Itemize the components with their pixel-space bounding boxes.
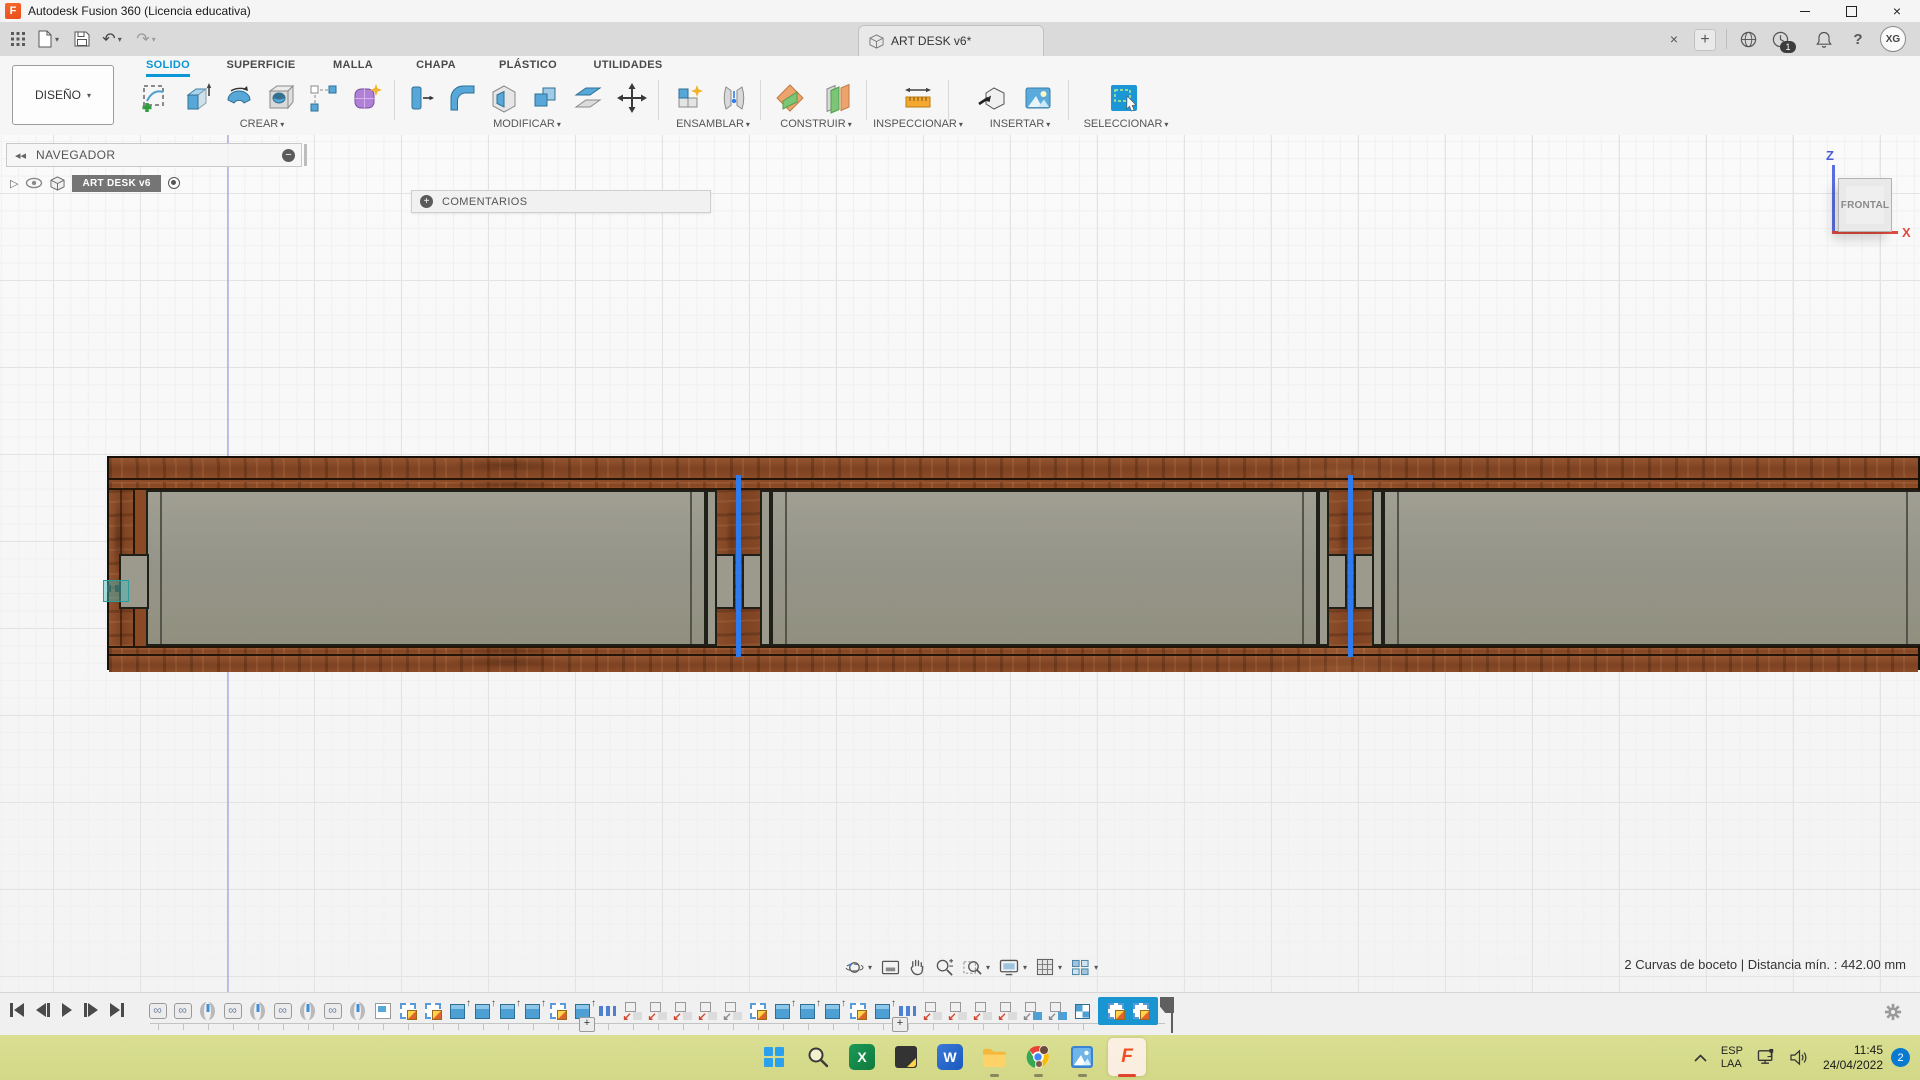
timeline-playhead-line [1171, 997, 1173, 1033]
notification-count-badge[interactable]: 2 [1891, 1048, 1910, 1067]
shell-icon [488, 82, 520, 114]
timeline-feature-joint-icon[interactable] [200, 1002, 215, 1020]
timeline-feature-slot [295, 999, 320, 1023]
navigator-item-label[interactable]: ART DESK v6 [72, 175, 160, 192]
tab-superficie[interactable]: SUPERFICIE [226, 59, 295, 74]
timeline-feature-joint-icon[interactable] [350, 1002, 365, 1020]
tab-chapa[interactable]: CHAPA [416, 59, 456, 74]
undo-icon: ↶ [102, 29, 115, 49]
selected-sketch-curve[interactable] [1348, 475, 1353, 657]
timeline-feature-slot [645, 999, 670, 1023]
divider [1068, 80, 1069, 120]
chevron-down-icon: ▾ [986, 963, 990, 972]
desk-top-inner-board[interactable] [109, 482, 1918, 490]
active-document-tab[interactable]: ART DESK v6* [858, 25, 1044, 56]
go-to-start-button[interactable] [10, 1003, 24, 1017]
keyboard-layout-code: LAA [1721, 1058, 1743, 1071]
chevron-down-icon: ▾ [280, 120, 284, 129]
timeline-features [145, 999, 1095, 1023]
drawer-slide-tab[interactable] [1354, 554, 1374, 609]
tab-utilidades[interactable]: UTILIDADES [594, 59, 663, 74]
expand-group-button[interactable]: + [892, 1017, 908, 1032]
workspace-selector-button[interactable]: DISEÑO▾ [12, 65, 114, 125]
bell-icon [1816, 31, 1832, 48]
combine-button[interactable] [528, 80, 564, 116]
joint-button[interactable] [716, 80, 752, 116]
open-app-indicator [1078, 1074, 1087, 1077]
insert-canvas-button[interactable] [1020, 80, 1056, 116]
drawer-slide-tab[interactable] [1327, 554, 1347, 609]
chevron-down-icon: ▾ [1023, 963, 1027, 972]
tab-malla[interactable]: MALLA [333, 59, 373, 74]
timeline-feature-slot [795, 999, 820, 1023]
zoom-window-icon [963, 958, 982, 977]
title-bar: F Autodesk Fusion 360 (Licencia educativ… [0, 0, 1920, 23]
timeline-feature-slot [545, 999, 570, 1023]
timeline-feature-slot [595, 999, 620, 1023]
measure-button[interactable] [900, 80, 936, 116]
pan-hand-icon [909, 958, 926, 976]
timeline-feature-pattern-icon[interactable] [899, 1006, 916, 1016]
timeline-feature-slot [270, 999, 295, 1023]
look-at-button[interactable] [881, 960, 900, 975]
timeline-feature-slot [745, 999, 770, 1023]
timeline-feature-slot [220, 999, 245, 1023]
group-label-crear[interactable]: CREAR▾ [240, 118, 285, 130]
timeline-feature-sketch-icon[interactable] [400, 1003, 416, 1019]
expand-group-button[interactable]: + [579, 1017, 595, 1032]
notifications-button[interactable] [1812, 27, 1836, 51]
shell-button[interactable] [486, 80, 522, 116]
workspace-label: DISEÑO [35, 88, 81, 102]
taskbar-sticky-notes-button[interactable] [892, 1043, 920, 1071]
timeline-feature-slot [920, 999, 945, 1023]
redo-button[interactable]: ↷▾ [134, 27, 158, 51]
help-button[interactable]: ? [1846, 27, 1870, 51]
canvas-navigation-bar: ▾ ▾ ▾ ▾ ▾ [845, 953, 1098, 981]
file-icon [37, 30, 53, 48]
modeling-canvas[interactable]: ◂◂ NAVEGADOR − ▷ ART DESK v6 + COMENTARI… [0, 135, 1920, 992]
grid-menu-icon [11, 32, 25, 46]
navigator-scrollbar[interactable] [304, 144, 307, 166]
document-cube-icon [869, 34, 884, 49]
timeline-feature-sketch-icon[interactable] [1133, 1003, 1149, 1019]
user-avatar[interactable]: XG [1880, 26, 1906, 52]
timeline-feature-slot [370, 999, 395, 1023]
maximize-icon [1846, 6, 1857, 17]
construction-plane-icon [774, 82, 806, 114]
hole-icon [265, 82, 297, 114]
maximize-button[interactable] [1828, 0, 1874, 22]
timeline-feature-slot [395, 999, 420, 1023]
timeline-feature-slot [620, 999, 645, 1023]
network-button[interactable] [1757, 1048, 1778, 1067]
timeline-feature-slot [695, 999, 720, 1023]
chrome-icon [1026, 1045, 1050, 1069]
group-label-seleccionar[interactable]: SELECCIONAR▾ [1084, 118, 1169, 130]
plus-icon: + [1700, 31, 1709, 49]
timeline-feature-slot [1070, 999, 1095, 1023]
excel-icon: X [849, 1044, 875, 1070]
timeline-feature-slot [970, 999, 995, 1023]
tab-plastico[interactable]: PLÁSTICO [499, 59, 557, 74]
timeline-feature-slot [495, 999, 520, 1023]
active-app-indicator [1118, 1074, 1136, 1077]
document-tab-label: ART DESK v6* [891, 34, 971, 48]
remove-filter-icon[interactable]: − [282, 149, 295, 162]
chevron-down-icon: ▾ [868, 963, 872, 972]
timeline-feature-sketch-icon[interactable] [750, 1003, 766, 1019]
timeline-feature-extrude-icon[interactable] [800, 1004, 815, 1019]
sticky-notes-icon [894, 1045, 918, 1069]
canvas-image-icon [1022, 82, 1054, 114]
navigator-title: NAVEGADOR [36, 148, 115, 162]
taskbar-search-button[interactable] [804, 1043, 832, 1071]
undo-button[interactable]: ↶▾ [100, 27, 124, 51]
axis-z-line [1832, 165, 1835, 233]
timeline-feature-slot [345, 999, 370, 1023]
divider [760, 80, 761, 120]
redo-icon: ↷ [136, 29, 149, 49]
pattern-button[interactable] [305, 80, 341, 116]
timeline-feature-slot [445, 999, 470, 1023]
zoom-window-button[interactable]: ▾ [963, 958, 990, 977]
minimize-button[interactable] [1782, 0, 1828, 22]
bay-divider[interactable] [706, 490, 771, 646]
group-label-insertar[interactable]: INSERTAR▾ [990, 118, 1051, 130]
look-at-icon [881, 960, 900, 975]
new-document-tab-button[interactable]: + [1694, 29, 1716, 51]
volume-button[interactable] [1790, 1049, 1809, 1066]
timeline-feature-extrude-icon[interactable] [875, 1004, 890, 1019]
document-tab-bar: ▾ ↶▾ ↷▾ ART DESK v6* × + 1 ? XG [0, 22, 1920, 57]
desk-bottom-board[interactable] [109, 654, 1918, 672]
move-copy-button[interactable] [614, 80, 650, 116]
close-document-button[interactable]: × [1662, 27, 1686, 51]
timeline-feature-slot [520, 999, 545, 1023]
manipulator-handle[interactable] [103, 580, 129, 602]
timeline-feature-rigid-icon[interactable] [149, 1003, 167, 1019]
revolve-icon [223, 82, 255, 114]
app-grid-button[interactable] [6, 27, 30, 51]
chevron-down-icon: ▾ [746, 120, 750, 129]
create-sketch-icon [139, 82, 171, 114]
press-pull-icon [404, 82, 436, 114]
timeline-feature-move-icon[interactable] [974, 1002, 992, 1020]
timeline-selected-features [1098, 997, 1158, 1025]
close-icon: × [1893, 4, 1901, 18]
axis-z-label: Z [1826, 148, 1834, 163]
save-button[interactable] [70, 27, 94, 51]
tray-time: 11:45 [1823, 1043, 1883, 1058]
chevron-down-icon: ▾ [1164, 120, 1168, 129]
chevron-down-icon: ▾ [152, 35, 156, 44]
form-icon [350, 82, 382, 114]
timeline-feature-move-icon[interactable] [699, 1002, 717, 1020]
chevron-down-icon: ▾ [118, 35, 122, 44]
search-icon [807, 1046, 829, 1068]
timeline-feature-movegray-icon[interactable] [724, 1002, 742, 1020]
tab-solido[interactable]: SOLIDO [146, 59, 190, 77]
windows-start-icon [763, 1046, 785, 1068]
globe-icon [1740, 31, 1757, 48]
timeline-feature-sketch-icon[interactable] [1108, 1003, 1124, 1019]
insert-mesh-icon [977, 82, 1009, 114]
minimize-icon [1800, 11, 1810, 12]
collapse-panel-icon[interactable]: ◂◂ [15, 149, 26, 162]
job-status-badge: 1 [1780, 41, 1796, 53]
timeline-feature-rigid-icon[interactable] [174, 1003, 192, 1019]
timeline-feature-extrude-icon[interactable] [500, 1004, 515, 1019]
grid-settings-icon [1036, 958, 1054, 976]
group-label-construir[interactable]: CONSTRUIR▾ [780, 118, 851, 130]
timeline-feature-sketch-icon[interactable] [550, 1003, 566, 1019]
timeline-feature-slot [770, 999, 795, 1023]
group-label-ensamblar[interactable]: ENSAMBLAR▾ [676, 118, 750, 130]
timeline-feature-slot [245, 999, 270, 1023]
job-status-button[interactable]: 1 [1768, 27, 1792, 51]
zoom-button[interactable] [935, 958, 954, 977]
grid-settings-button[interactable]: ▾ [1036, 958, 1062, 976]
timeline-feature-extrude-icon[interactable] [525, 1004, 540, 1019]
timeline-feature-slot [720, 999, 745, 1023]
input-language-button[interactable]: ESP LAA [1721, 1045, 1743, 1071]
move-icon [616, 82, 648, 114]
extension-manager-button[interactable] [1736, 27, 1760, 51]
construction-plane-button[interactable] [772, 80, 808, 116]
chevron-down-icon: ▾ [959, 120, 963, 129]
ribbon: SOLIDO SUPERFICIE MALLA CHAPA PLÁSTICO U… [0, 56, 1920, 136]
play-button[interactable] [62, 1003, 72, 1017]
measure-icon [902, 82, 934, 114]
timeline-feature-move-icon[interactable] [949, 1002, 967, 1020]
viewports-icon [1071, 959, 1090, 976]
timeline-feature-slot [945, 999, 970, 1023]
offset-plane-icon [820, 82, 852, 114]
group-label-inspeccionar[interactable]: INSPECCIONAR▾ [873, 118, 963, 130]
chevron-down-icon: ▾ [848, 120, 852, 129]
display-settings-icon [999, 959, 1019, 976]
navigator-panel-header[interactable]: ◂◂ NAVEGADOR − [6, 143, 302, 167]
create-sketch-button[interactable] [137, 80, 173, 116]
divider [866, 80, 867, 120]
timeline-feature-move-icon[interactable] [624, 1002, 642, 1020]
new-component-icon [674, 82, 706, 114]
network-icon [1757, 1048, 1778, 1067]
drawer-slide-tab[interactable] [742, 554, 762, 609]
timeline-feature-rigid-icon[interactable] [324, 1003, 342, 1019]
timeline-feature-plane-icon[interactable] [375, 1003, 391, 1019]
insert-mesh-button[interactable] [975, 80, 1011, 116]
taskbar-file-explorer-button[interactable] [980, 1043, 1008, 1071]
timeline-feature-moveblue-icon[interactable] [1024, 1002, 1042, 1020]
taskbar-chrome-button[interactable] [1024, 1043, 1052, 1071]
system-tray: ESP LAA 11:45 24/04/2022 2 [1694, 1035, 1920, 1080]
step-back-button[interactable] [36, 1003, 50, 1017]
joint-icon [718, 82, 750, 114]
component-icon [50, 176, 65, 191]
timeline-feature-extrude-icon[interactable] [475, 1004, 490, 1019]
timeline-feature-slot [1020, 999, 1045, 1023]
timeline-feature-move-icon[interactable] [999, 1002, 1017, 1020]
close-button[interactable]: × [1874, 0, 1920, 22]
step-forward-button[interactable] [84, 1003, 98, 1017]
timeline-feature-extrude-icon[interactable] [450, 1004, 465, 1019]
timeline-feature-slot [420, 999, 445, 1023]
timeline-feature-extrude-icon[interactable] [825, 1004, 840, 1019]
timeline-feature-rigid-icon[interactable] [224, 1003, 242, 1019]
extrude-button[interactable] [179, 80, 215, 116]
timeline-feature-joint-icon[interactable] [300, 1002, 315, 1020]
timeline-feature-slot [670, 999, 695, 1023]
taskbar-word-button[interactable]: W [936, 1043, 964, 1071]
avatar-initials: XG [1886, 34, 1900, 45]
timeline-feature-sketch-icon[interactable] [850, 1003, 866, 1019]
navigator-root-item[interactable]: ▷ ART DESK v6 [10, 174, 180, 192]
divider [394, 80, 395, 120]
select-button[interactable] [1106, 80, 1142, 116]
timeline-feature-slot [1128, 999, 1153, 1023]
open-app-indicator [1034, 1074, 1043, 1077]
gear-icon [1884, 1003, 1902, 1021]
visibility-eye-icon[interactable] [25, 177, 43, 189]
viewports-button[interactable]: ▾ [1071, 959, 1098, 976]
open-app-indicator [990, 1074, 999, 1077]
timeline-feature-move-icon[interactable] [924, 1002, 942, 1020]
taskbar-photos-button[interactable] [1068, 1043, 1096, 1071]
orbit-icon [845, 958, 864, 977]
divider [658, 80, 659, 120]
viewcube-face-label: FRONTAL [1841, 200, 1889, 211]
chevron-down-icon: ▾ [87, 91, 91, 100]
hole-button[interactable] [263, 80, 299, 116]
clock-date-button[interactable]: 11:45 24/04/2022 [1823, 1043, 1883, 1073]
language-code: ESP [1721, 1045, 1743, 1058]
selected-sketch-curve[interactable] [736, 475, 741, 657]
desk-top-board[interactable] [109, 458, 1918, 480]
activate-component-radio[interactable] [168, 177, 180, 189]
desk-bottom-inner-board[interactable] [109, 646, 1918, 654]
pan-button[interactable] [909, 958, 926, 976]
taskbar-excel-button[interactable]: X [848, 1043, 876, 1071]
folder-icon [982, 1047, 1007, 1068]
chevron-down-icon: ▾ [1094, 963, 1098, 972]
timeline-feature-combine-icon[interactable] [1075, 1004, 1090, 1019]
word-icon: W [937, 1044, 963, 1070]
select-icon [1108, 82, 1140, 114]
expand-arrow-icon[interactable]: ▷ [10, 177, 18, 190]
create-form-button[interactable] [348, 80, 384, 116]
viewcube[interactable]: Z X FRONTAL [1810, 140, 1920, 250]
timeline-feature-move-icon[interactable] [649, 1002, 667, 1020]
fusion-360-icon: F [1121, 1046, 1133, 1068]
save-icon [74, 31, 90, 47]
offset-plane-button[interactable] [818, 80, 854, 116]
fillet-icon [446, 82, 478, 114]
speaker-icon [1790, 1049, 1809, 1066]
divider [1726, 29, 1727, 49]
orbit-button[interactable]: ▾ [845, 958, 872, 977]
timeline-feature-rigid-icon[interactable] [274, 1003, 292, 1019]
timeline-feature-slot [1103, 999, 1128, 1023]
timeline-feature-slot [195, 999, 220, 1023]
timeline-settings-button[interactable] [1884, 1003, 1902, 1021]
chevron-up-icon [1694, 1054, 1707, 1062]
timeline-feature-slot [1045, 999, 1070, 1023]
chevron-down-icon: ▾ [1058, 963, 1062, 972]
combine-icon [530, 82, 562, 114]
close-icon: × [1670, 31, 1678, 47]
add-comment-icon[interactable]: + [420, 195, 433, 208]
new-component-button[interactable] [672, 80, 708, 116]
drawer-bay[interactable] [1383, 490, 1920, 646]
offset-face-icon [572, 82, 604, 114]
go-to-end-button[interactable] [110, 1003, 124, 1017]
drawer-bay[interactable] [146, 490, 706, 646]
chevron-down-icon: ▾ [55, 35, 59, 44]
group-label-modificar[interactable]: MODIFICAR▾ [493, 118, 561, 130]
timeline-bar: + + [0, 992, 1920, 1036]
timeline-feature-move-icon[interactable] [674, 1002, 692, 1020]
tray-chevron-button[interactable] [1694, 1054, 1707, 1062]
window-title: Autodesk Fusion 360 (Licencia educativa) [28, 4, 251, 18]
timeline-feature-slot [320, 999, 345, 1023]
comments-title: COMENTARIOS [442, 196, 527, 208]
comments-panel[interactable]: + COMENTARIOS [411, 190, 711, 213]
extrude-icon [181, 82, 213, 114]
timeline-feature-slot [145, 999, 170, 1023]
timeline-feature-slot [170, 999, 195, 1023]
zoom-icon [935, 958, 954, 977]
drawer-slide-tab[interactable] [715, 554, 735, 609]
timeline-feature-slot [470, 999, 495, 1023]
selection-status-text: 2 Curvas de boceto | Distancia mín. : 44… [1624, 957, 1906, 972]
chevron-down-icon: ▾ [1046, 120, 1050, 129]
revolve-button[interactable] [221, 80, 257, 116]
divider [948, 80, 949, 120]
windows-taskbar: X W F ESP LAA [0, 1035, 1920, 1080]
timeline-playback-controls [10, 1003, 124, 1017]
chevron-down-icon: ▾ [557, 120, 561, 129]
file-menu-button[interactable]: ▾ [36, 27, 60, 51]
press-pull-button[interactable] [402, 80, 438, 116]
timeline-feature-joint-icon[interactable] [250, 1002, 265, 1020]
offset-face-button[interactable] [570, 80, 606, 116]
timeline-feature-moveblue-icon[interactable] [1049, 1002, 1067, 1020]
timeline-feature-extrude-icon[interactable] [775, 1004, 790, 1019]
viewcube-front-face[interactable]: FRONTAL [1838, 178, 1892, 232]
timeline-feature-slot [845, 999, 870, 1023]
help-icon: ? [1853, 31, 1862, 48]
taskbar-fusion-button[interactable]: F [1108, 1038, 1146, 1076]
timeline-feature-slot [995, 999, 1020, 1023]
tray-date: 24/04/2022 [1823, 1058, 1883, 1073]
timeline-feature-sketch-icon[interactable] [425, 1003, 441, 1019]
timeline-feature-pattern-icon[interactable] [599, 1006, 616, 1016]
fillet-button[interactable] [444, 80, 480, 116]
photos-icon [1070, 1045, 1094, 1069]
axis-x-label: X [1902, 225, 1911, 240]
display-settings-button[interactable]: ▾ [999, 959, 1027, 976]
bay-divider[interactable] [1318, 490, 1383, 646]
fusion-app-icon: F [5, 3, 21, 19]
start-button[interactable] [760, 1043, 788, 1071]
drawer-bay[interactable] [771, 490, 1318, 646]
timeline-feature-slot [820, 999, 845, 1023]
pattern-icon [307, 82, 339, 114]
desk-drawing[interactable] [107, 456, 1920, 670]
